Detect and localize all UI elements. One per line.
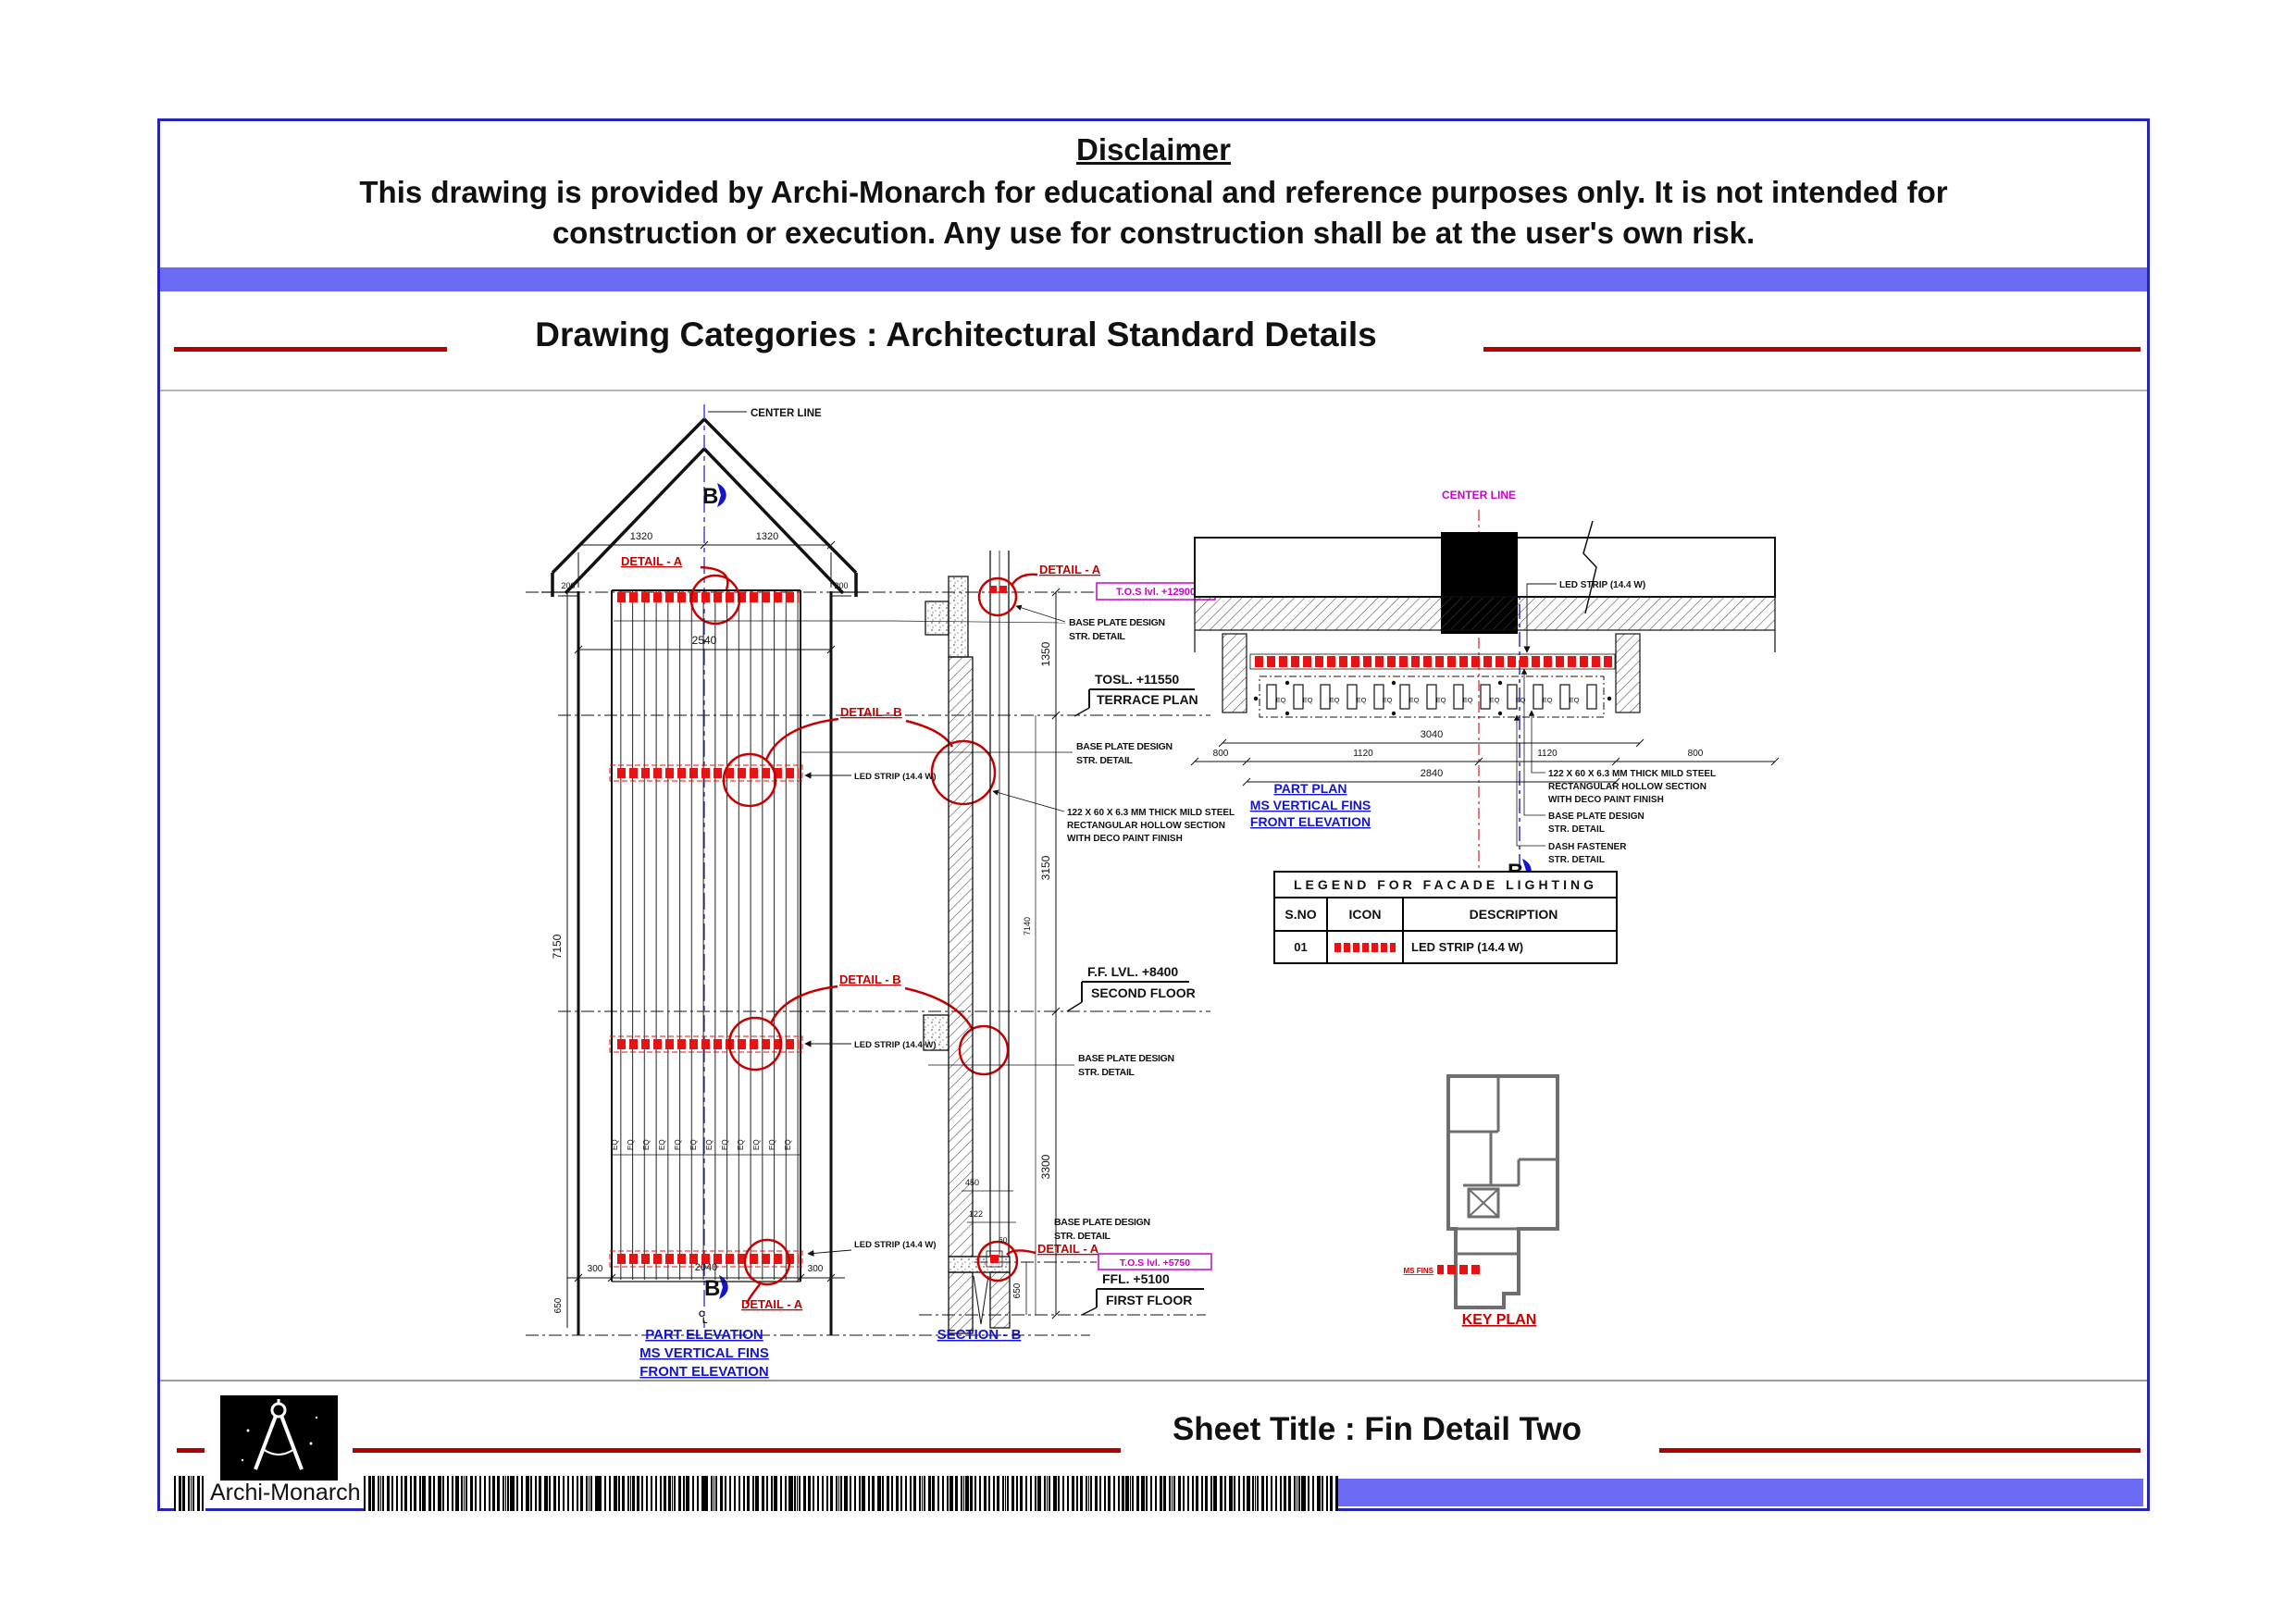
svg-text:RECTANGULAR HOLLOW SECTION: RECTANGULAR HOLLOW SECTION: [1548, 782, 1706, 792]
legend-led-icon: [1328, 932, 1404, 962]
svg-text:EQ: EQ: [705, 1139, 714, 1150]
barcode-main: [364, 1476, 1338, 1511]
legend-row-description: LED STRIP (14.4 W): [1404, 932, 1616, 962]
led-strip-icon: [1334, 943, 1396, 952]
caption-ms-fins: MS VERTICAL FINS: [639, 1345, 769, 1361]
svg-text:EQ: EQ: [737, 1139, 745, 1150]
svg-text:EQ: EQ: [1383, 696, 1393, 704]
svg-text:EQ: EQ: [1276, 696, 1286, 704]
tos-top-tag: T.O.S lvl. +12900: [1116, 587, 1196, 598]
detail-b-label-2: DETAIL - B: [839, 973, 901, 986]
level-second: SECOND FLOOR: [1091, 985, 1196, 1000]
svg-text:122 X 60 X 6.3 MM THICK MILD S: 122 X 60 X 6.3 MM THICK MILD STEEL: [1067, 808, 1235, 818]
svg-text:STR. DETAIL: STR. DETAIL: [1548, 855, 1605, 865]
dim-edge-right: 200: [834, 581, 848, 590]
vertical-fins: [614, 591, 799, 1280]
svg-text:EQ: EQ: [1570, 696, 1580, 704]
svg-text:BASE PLATE DESIGN: BASE PLATE DESIGN: [1548, 811, 1644, 822]
legend-col-icon: ICON: [1328, 898, 1404, 930]
caption-part-elevation: PART ELEVATION: [645, 1327, 763, 1343]
svg-text:RECTANGULAR HOLLOW SECTION: RECTANGULAR HOLLOW SECTION: [1067, 821, 1225, 831]
dim-bottom-mid: 2040: [695, 1262, 717, 1273]
sheet-title: Sheet Title : Fin Detail Two: [1132, 1411, 1622, 1448]
dim-plan-inner-right: 1120: [1537, 749, 1558, 759]
elevation-caption: PART ELEVATION MS VERTICAL FINS FRONT EL…: [639, 1327, 769, 1380]
brand-name: Archi-Monarch: [210, 1480, 361, 1506]
wall-band: [1195, 597, 1775, 630]
svg-text:EQ: EQ: [784, 1139, 792, 1150]
section-b-drawing: DETAIL - A DETAIL - A T.O.S lvl. +12900 …: [800, 551, 1235, 1343]
detail-a-label-top: DETAIL - A: [621, 554, 683, 568]
detail-a-label-bottom: DETAIL - A: [741, 1297, 803, 1311]
detail-b-label-1: DETAIL - B: [840, 705, 902, 719]
svg-text:EQ: EQ: [1543, 696, 1553, 704]
legend-title: LEGEND FOR FACADE LIGHTING: [1275, 873, 1616, 898]
caption-section-b: SECTION - B: [937, 1327, 1022, 1343]
led-annotations: LED STRIP (14.4 W) LED STRIP (14.4 W) LE…: [805, 772, 937, 1254]
dim-122: 122: [969, 1209, 983, 1219]
dim-1350: 1350: [1039, 641, 1052, 666]
svg-text:EQ: EQ: [642, 1139, 651, 1150]
level-terrace: TERRACE PLAN: [1097, 692, 1198, 707]
svg-text:BASE PLATE DESIGN: BASE PLATE DESIGN: [1054, 1217, 1150, 1228]
title-rule-far-left: [177, 1448, 205, 1453]
title-rule-left: [353, 1448, 1121, 1453]
svg-text:EQ: EQ: [1357, 696, 1367, 704]
svg-text:L: L: [702, 1316, 708, 1325]
svg-text:EQ: EQ: [1463, 696, 1473, 704]
svg-text:EQ: EQ: [1409, 696, 1420, 704]
svg-text:DASH FASTENER: DASH FASTENER: [1548, 842, 1627, 852]
key-plan-fins-highlight: [1437, 1265, 1482, 1274]
steel-note-section: 122 X 60 X 6.3 MM THICK MILD STEEL RECTA…: [993, 791, 1235, 844]
barcode-left: [174, 1476, 205, 1511]
dim-mid-width: 2540: [692, 634, 717, 647]
section-structure: [990, 551, 1009, 1257]
led-strip-label-3: LED STRIP (14.4 W): [854, 1240, 937, 1250]
dim-plan-edge-left: 800: [1213, 749, 1229, 759]
dim-7140: 7140: [1023, 917, 1032, 935]
legend-col-description: DESCRIPTION: [1404, 898, 1616, 930]
footer-separator: [160, 1380, 2147, 1381]
svg-text:WITH DECO PAINT FINISH: WITH DECO PAINT FINISH: [1548, 795, 1664, 805]
caption-plan-ms-fins: MS VERTICAL FINS: [1250, 798, 1371, 812]
svg-text:EQ: EQ: [768, 1139, 776, 1150]
center-line-label: CENTER LINE: [751, 408, 822, 419]
dim-plan-total-bottom: 2840: [1421, 768, 1443, 779]
dim-plan-inner-left: 1120: [1353, 749, 1373, 759]
dim-roof-right: 1320: [756, 531, 778, 542]
dim-plan-edge-right: 800: [1688, 749, 1704, 759]
section-wall: [924, 576, 1010, 1333]
led-strip-label-1: LED STRIP (14.4 W): [854, 772, 937, 782]
svg-text:EQ: EQ: [1330, 696, 1340, 704]
svg-text:EQ: EQ: [627, 1139, 635, 1150]
section-marker-b-top: [702, 483, 726, 509]
center-line-label-plan: CENTER LINE: [1442, 489, 1516, 502]
level-first: FIRST FLOOR: [1106, 1293, 1192, 1307]
key-plan-title: KEY PLAN: [1462, 1312, 1537, 1328]
dim-60: 60: [999, 1235, 1008, 1245]
title-rule-right: [1659, 1448, 2141, 1453]
svg-text:EQ: EQ: [1490, 696, 1500, 704]
caption-front-elevation: FRONT ELEVATION: [639, 1364, 768, 1380]
tos-bottom-tag: T.O.S lvl. +5750: [1120, 1258, 1190, 1269]
key-plan-fins-label: MS FINS: [1404, 1267, 1434, 1275]
dim-3150: 3150: [1039, 855, 1052, 880]
svg-text:BASE PLATE DESIGN: BASE PLATE DESIGN: [1078, 1053, 1174, 1064]
dim-roof-left: 1320: [630, 531, 652, 542]
led-strip-plan: [1252, 656, 1613, 667]
svg-text:STR. DETAIL: STR. DETAIL: [1069, 631, 1126, 642]
svg-text:BASE PLATE DESIGN: BASE PLATE DESIGN: [1076, 741, 1173, 752]
dim-edge-left: 200: [561, 581, 575, 590]
part-plan-drawing: CENTER LINE: [1191, 489, 1779, 905]
dim-plan-total-top: 3040: [1421, 729, 1443, 740]
category-rule-left: [174, 347, 447, 352]
drawing-canvas: B CENTER LINE: [160, 391, 2147, 1380]
purple-divider-bottom: [1338, 1479, 2143, 1506]
svg-text:STR. DETAIL: STR. DETAIL: [1054, 1231, 1111, 1242]
dim-650: 650: [1012, 1282, 1023, 1298]
archi-monarch-logo: [220, 1395, 338, 1481]
svg-text:EQ: EQ: [721, 1139, 729, 1150]
disclaimer-line1: This drawing is provided by Archi-Monarc…: [160, 175, 2147, 210]
compass-icon: [220, 1395, 338, 1481]
detail-a-label-section-bottom: DETAIL - A: [1037, 1242, 1099, 1256]
svg-text:STR. DETAIL: STR. DETAIL: [1548, 824, 1605, 835]
dim-elevation-height: 7150: [551, 934, 564, 959]
key-plan-drawing: MS FINS KEY PLAN: [1404, 1076, 1558, 1328]
cl-symbol-elevation: C L: [699, 1309, 708, 1325]
svg-text:EQ: EQ: [1436, 696, 1446, 704]
level-ff2: F.F. LVL. +8400: [1087, 964, 1178, 979]
legend-col-sno: S.NO: [1275, 898, 1328, 930]
svg-text:EQ: EQ: [689, 1139, 698, 1150]
disclaimer-title: Disclaimer: [160, 132, 2147, 167]
category-rule-right: [1483, 347, 2141, 352]
led-strip-label-plan: LED STRIP (14.4 W): [1559, 580, 1645, 590]
dim-base-height: 650: [553, 1297, 564, 1313]
svg-text:STR. DETAIL: STR. DETAIL: [1078, 1067, 1136, 1078]
purple-divider-top: [160, 267, 2147, 291]
svg-text:EQ: EQ: [1303, 696, 1313, 704]
sheet-frame: Disclaimer This drawing is provided by A…: [157, 118, 2150, 1511]
disclaimer-line2: construction or execution. Any use for c…: [160, 216, 2147, 251]
dim-3300: 3300: [1039, 1154, 1052, 1179]
svg-text:EQ: EQ: [611, 1139, 619, 1150]
detail-a-label-section-top: DETAIL - A: [1039, 563, 1101, 576]
caption-part-plan: PART PLAN: [1273, 781, 1347, 796]
level-tosl: TOSL. +11550: [1095, 672, 1179, 687]
svg-text:122 X 60 X 6.3 MM THICK MILD S: 122 X 60 X 6.3 MM THICK MILD STEEL: [1548, 769, 1716, 779]
svg-text:EQ: EQ: [752, 1139, 761, 1150]
dim-450: 450: [965, 1178, 979, 1187]
dim-bottom-left: 300: [588, 1264, 603, 1274]
caption-plan-front-elev: FRONT ELEVATION: [1250, 814, 1371, 829]
facade-lighting-legend: LEGEND FOR FACADE LIGHTING S.NO ICON DES…: [1273, 871, 1618, 964]
svg-text:WITH DECO PAINT FINISH: WITH DECO PAINT FINISH: [1067, 834, 1183, 844]
legend-row-number: 01: [1275, 932, 1328, 962]
svg-text:STR. DETAIL: STR. DETAIL: [1076, 755, 1134, 766]
part-elevation-drawing: CENTER LINE: [541, 404, 1065, 1380]
dim-bottom-right: 300: [808, 1264, 824, 1274]
svg-text:EQ: EQ: [674, 1139, 682, 1150]
svg-text:EQ: EQ: [658, 1139, 666, 1150]
plan-caption: PART PLAN MS VERTICAL FINS FRONT ELEVATI…: [1250, 781, 1371, 829]
svg-text:BASE PLATE DESIGN: BASE PLATE DESIGN: [1069, 617, 1165, 628]
level-ffl: FFL. +5100: [1102, 1271, 1170, 1286]
